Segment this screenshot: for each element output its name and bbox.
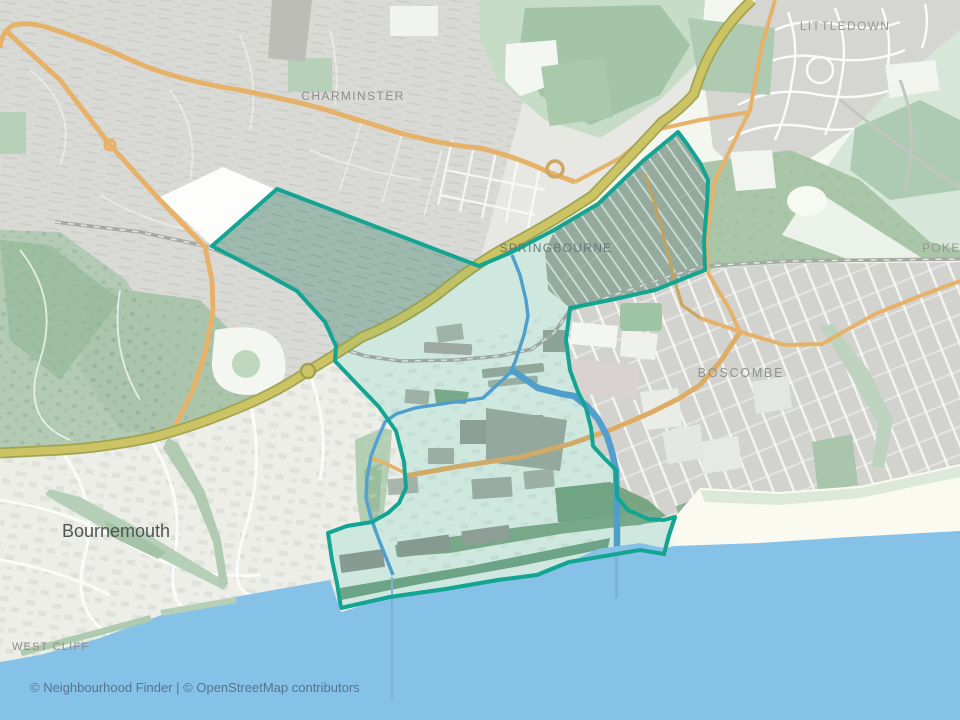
svg-text:WEST CLIFF: WEST CLIFF	[12, 641, 89, 653]
svg-text:© Neighbourhood Finder | © Ope: © Neighbourhood Finder | © OpenStreetMap…	[30, 680, 360, 695]
svg-text:POKESDOWN: POKESDOWN	[922, 241, 960, 255]
svg-text:Bournemouth: Bournemouth	[62, 521, 170, 541]
svg-text:BOSCOMBE: BOSCOMBE	[698, 366, 785, 380]
svg-text:CHARMINSTER: CHARMINSTER	[301, 89, 404, 103]
svg-text:LITTLEDOWN: LITTLEDOWN	[800, 19, 890, 33]
svg-text:SPRINGBOURNE: SPRINGBOURNE	[500, 241, 613, 255]
